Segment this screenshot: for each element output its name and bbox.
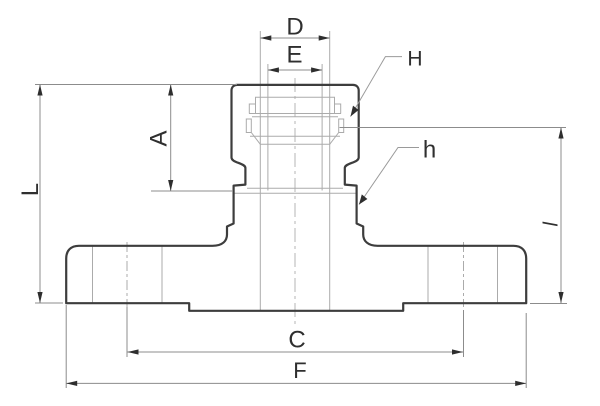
svg-text:C: C (288, 327, 305, 354)
svg-text:D: D (286, 14, 303, 41)
svg-text:F: F (293, 358, 306, 383)
svg-text:E: E (286, 41, 302, 68)
svg-text:H: H (407, 48, 422, 71)
svg-text:A: A (146, 130, 173, 146)
svg-text:L: L (17, 183, 44, 196)
svg-text:h: h (423, 137, 436, 164)
svg-text:l: l (541, 222, 563, 227)
